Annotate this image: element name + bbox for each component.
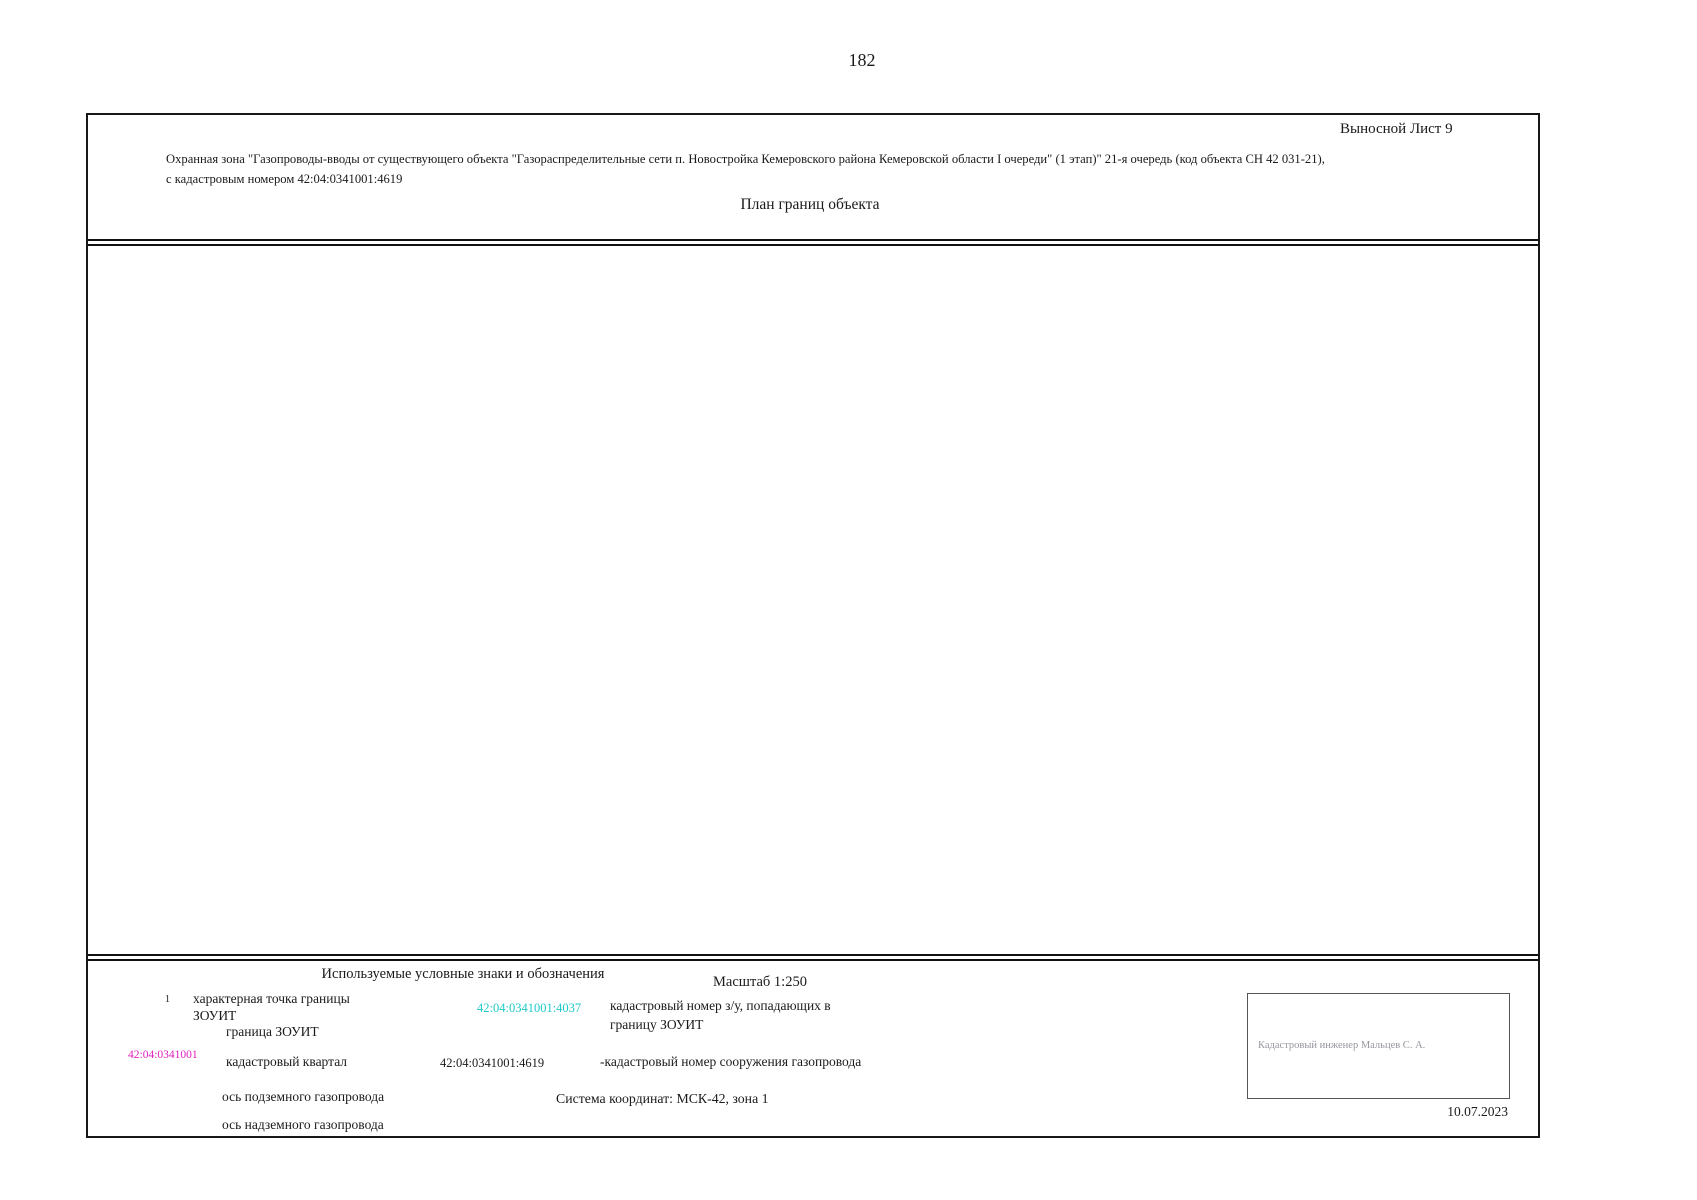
legend-title: Используемые условные знаки и обозначени… [268,966,658,983]
legend-item-parcel-line2: границу ЗОУИТ [610,1017,703,1033]
legend-point-number: 1 [165,994,170,1005]
legend-item-quarter: кадастровый квартал [226,1054,347,1070]
separator-band-top [88,239,1538,246]
stamp-date: 10.07.2023 [1408,1104,1508,1120]
legend-parcel-number-cyan: 42:04:0341001:4037 [477,1001,581,1016]
scanned-cadastral-page: { "page": {"number": "182"}, "header": {… [0,0,1697,1200]
document-title-line1: Охранная зона "Газопроводы-вводы от суще… [166,152,1526,167]
legend-item-pipeline-number-desc: -кадастровый номер сооружения газопровод… [600,1054,861,1070]
legend-item-zouit-border: граница ЗОУИТ [226,1024,319,1040]
legend-pipeline-number: 42:04:0341001:4619 [440,1056,544,1071]
plan-title: План границ объекта [650,196,970,214]
legend-quarter-number: 42:04:0341001 [128,1049,198,1061]
map-scale: Масштаб 1:250 [695,974,825,991]
legend-item-point-line2: ЗОУИТ [193,1008,236,1024]
separator-band-bottom [88,954,1538,961]
page-number: 182 [830,50,894,71]
coordinate-system-note: Система координат: МСК-42, зона 1 [556,1091,769,1107]
legend-item-underground-axis: ось подземного газопровода [222,1089,384,1105]
document-title-line2: с кадастровым номером 42:04:0341001:4619 [166,172,866,187]
sheet-label: Выносной Лист 9 [1340,121,1530,138]
legend-item-overground-axis: ось надземного газопровода [222,1117,384,1133]
stamp-engineer-label: Кадастровый инженер Мальцев С. А. [1258,1040,1425,1051]
legend-item-point-line1: характерная точка границы [193,991,350,1007]
legend-item-parcel-line1: кадастровый номер з/у, попадающих в [610,998,831,1014]
